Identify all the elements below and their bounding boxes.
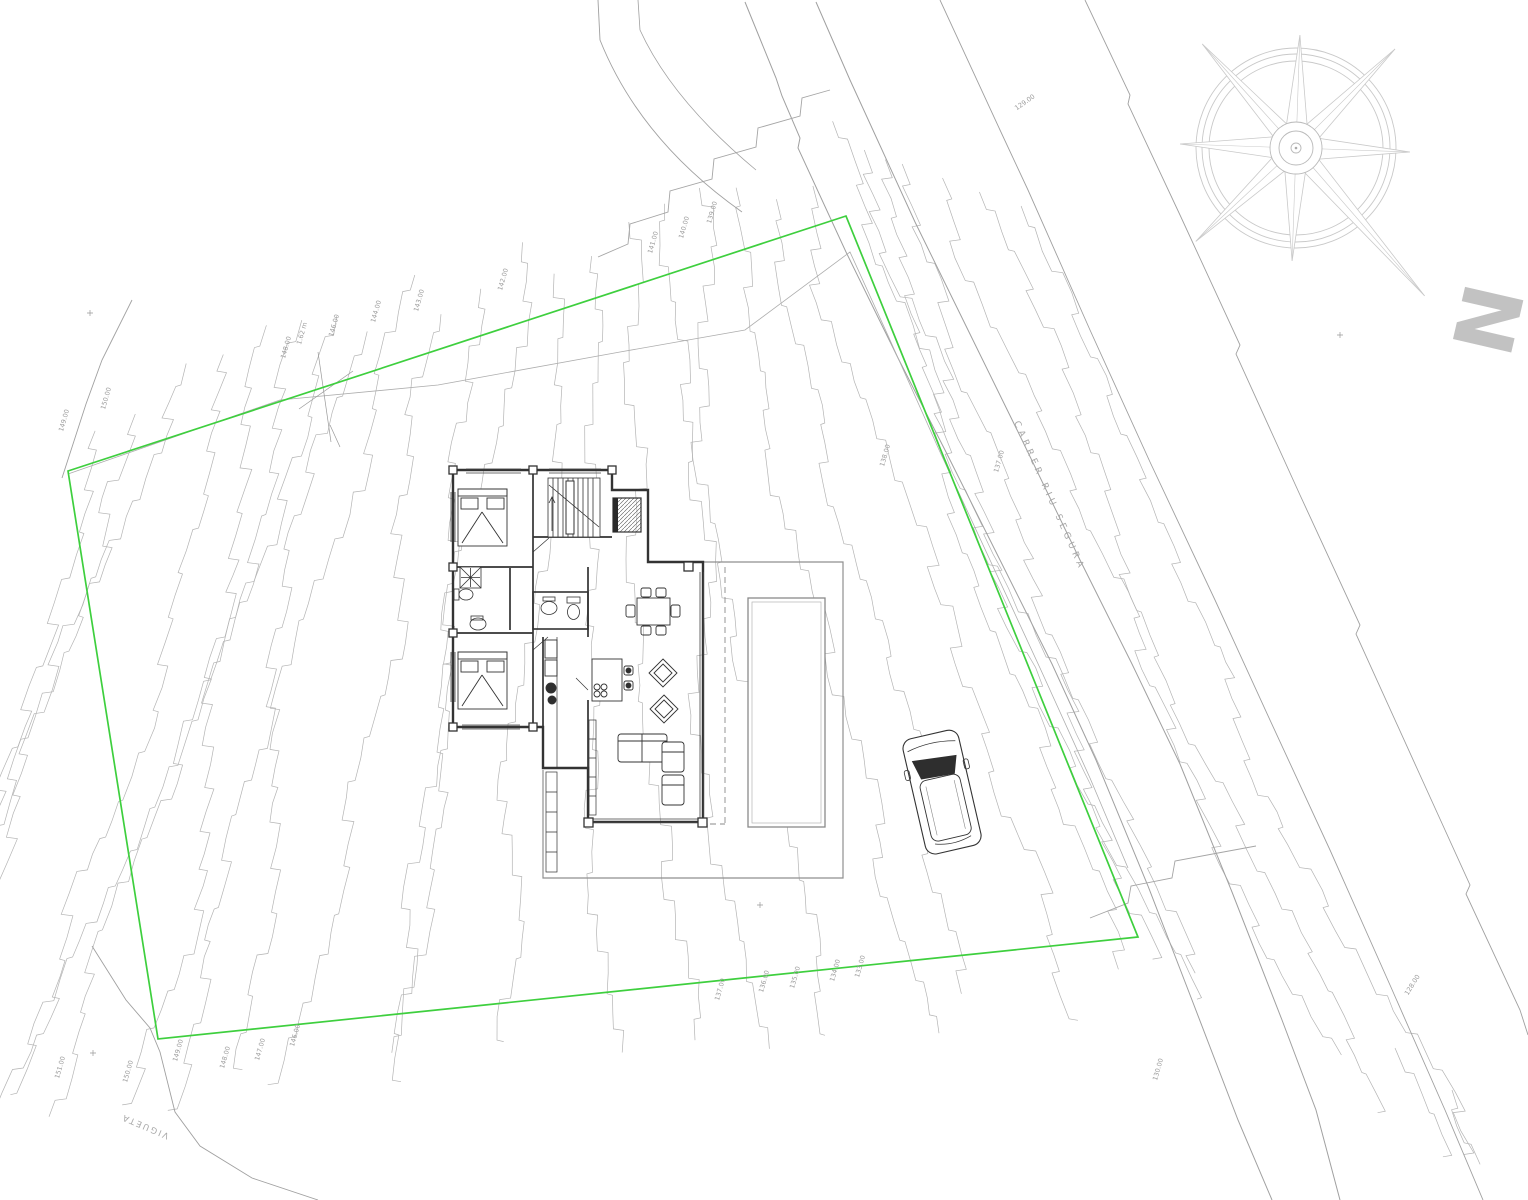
elevation-label: 150.00 bbox=[99, 386, 113, 410]
elevation-label: 144.00 bbox=[369, 299, 383, 323]
elevation-label: 143.00 bbox=[412, 288, 426, 312]
staircase bbox=[548, 478, 600, 537]
elevation-label: 149.00 bbox=[171, 1038, 185, 1062]
elevation-label: 140.00 bbox=[677, 215, 691, 239]
dining-table bbox=[637, 598, 670, 625]
house-floor-plan bbox=[449, 466, 707, 872]
elevation-label: 142.00 bbox=[496, 267, 510, 291]
plot-boundary bbox=[68, 216, 1138, 1039]
spot-height-ticks bbox=[87, 310, 1343, 1056]
contour-line bbox=[863, 150, 1162, 959]
elevation-label: 135.00 bbox=[788, 965, 802, 989]
kitchen-sink-bowl-2 bbox=[548, 696, 556, 704]
elevation-label: 148.00 bbox=[279, 335, 293, 359]
bed-1 bbox=[458, 489, 507, 546]
elevation-label: 150.00 bbox=[121, 1059, 135, 1083]
kitchen-sink-bowl bbox=[546, 683, 556, 693]
contour-line bbox=[1021, 206, 1474, 1155]
bed-2 bbox=[458, 652, 507, 709]
elevation-label: 146.00 bbox=[327, 313, 341, 337]
car bbox=[897, 727, 987, 857]
street-name-label: VIGUETA bbox=[120, 1111, 171, 1140]
contour-line bbox=[584, 256, 624, 1052]
elevation-label: 136.00 bbox=[757, 969, 771, 993]
contour-line bbox=[902, 164, 1201, 999]
elevation-label: 148.00 bbox=[218, 1045, 232, 1069]
contour-lines bbox=[0, 121, 1480, 1164]
boundary-top-left bbox=[62, 300, 132, 478]
elevation-label: 133.00 bbox=[853, 954, 867, 978]
survey-cross bbox=[299, 352, 353, 447]
elevation-label: 149.00 bbox=[57, 408, 71, 432]
contour-line bbox=[10, 325, 266, 1094]
elevation-label: 138.00 bbox=[878, 443, 892, 467]
compass-arm-midline bbox=[1296, 148, 1425, 296]
contour-line bbox=[0, 414, 135, 1098]
road-corner-curve bbox=[598, 0, 742, 212]
elevation-label: 128.00 bbox=[1403, 973, 1422, 997]
site-plan-svg: 149.00150.00148.001.62 m146.00144.00143.… bbox=[0, 0, 1528, 1200]
elevation-label: 1.62 m bbox=[295, 321, 309, 345]
contour-line bbox=[268, 314, 441, 1084]
elevation-label: 151.00 bbox=[53, 1055, 67, 1079]
pool-outline bbox=[748, 598, 825, 827]
elevation-label: 130.00 bbox=[1151, 1057, 1165, 1081]
dining-set bbox=[626, 588, 680, 635]
site-plan-canvas: 149.00150.00148.001.62 m146.00144.00143.… bbox=[0, 0, 1528, 1200]
elevation-label: 146.00 bbox=[288, 1023, 302, 1047]
elevation-label: 134.00 bbox=[828, 958, 842, 982]
elevation-label: 139.00 bbox=[705, 200, 719, 224]
contour-line bbox=[49, 320, 302, 1117]
armchairs bbox=[649, 659, 678, 723]
contour-line bbox=[1395, 1048, 1452, 1157]
bathroom-1-fixtures bbox=[454, 567, 486, 630]
door-leaves bbox=[533, 538, 588, 690]
road-corner-curve-inner bbox=[638, 0, 756, 170]
contour-line bbox=[0, 355, 226, 1138]
contour-line bbox=[168, 331, 367, 1110]
compass-rose bbox=[1180, 35, 1425, 296]
elevation-label: 137.00 bbox=[992, 449, 1006, 473]
plot-boundary-line bbox=[68, 216, 1138, 1039]
bathroom-2-fixtures bbox=[541, 597, 580, 620]
elevation-label: 147.00 bbox=[253, 1037, 267, 1061]
contour-line bbox=[392, 242, 532, 1053]
road-side-boundary bbox=[940, 0, 1483, 1200]
sofa bbox=[618, 734, 684, 805]
elevator-shaft bbox=[613, 498, 641, 532]
contour-line bbox=[0, 364, 186, 1126]
contour-line bbox=[943, 178, 1342, 1055]
elevation-label: 141.00 bbox=[646, 230, 660, 254]
north-letter: N bbox=[1432, 275, 1528, 363]
elevation-label: 129.00 bbox=[1013, 93, 1036, 113]
road-name-label: CARRER RIU SEGURA bbox=[1011, 420, 1086, 573]
compass-center-dot bbox=[1295, 147, 1298, 150]
contour-line bbox=[1452, 1090, 1481, 1164]
contour-line bbox=[810, 186, 1078, 1020]
